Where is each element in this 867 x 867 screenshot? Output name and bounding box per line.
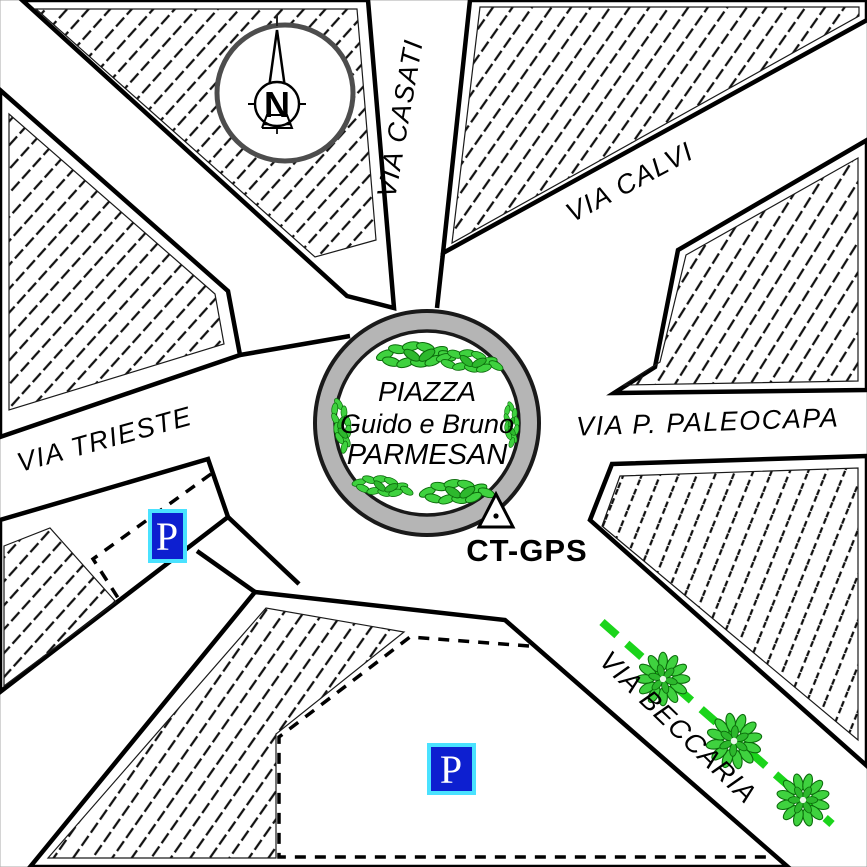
piazza-name-line1: PIAZZA [378, 376, 476, 407]
piazza-name-line3: PARMESAN [347, 439, 508, 471]
street-map: PIAZZA Guido e Bruno PARMESAN N VIA CASA… [0, 0, 867, 867]
gps-station-label: CT-GPS [466, 533, 587, 568]
parking-sign-trieste: P [150, 511, 185, 561]
parking-sign-letter: P [156, 514, 178, 559]
gps-station-dot [493, 513, 498, 518]
compass-north-label: N [264, 84, 290, 125]
piazza-name-line2: Guido e Bruno [340, 409, 514, 439]
parking-sign-south: P [429, 745, 474, 793]
parking-sign-letter: P [440, 747, 462, 792]
